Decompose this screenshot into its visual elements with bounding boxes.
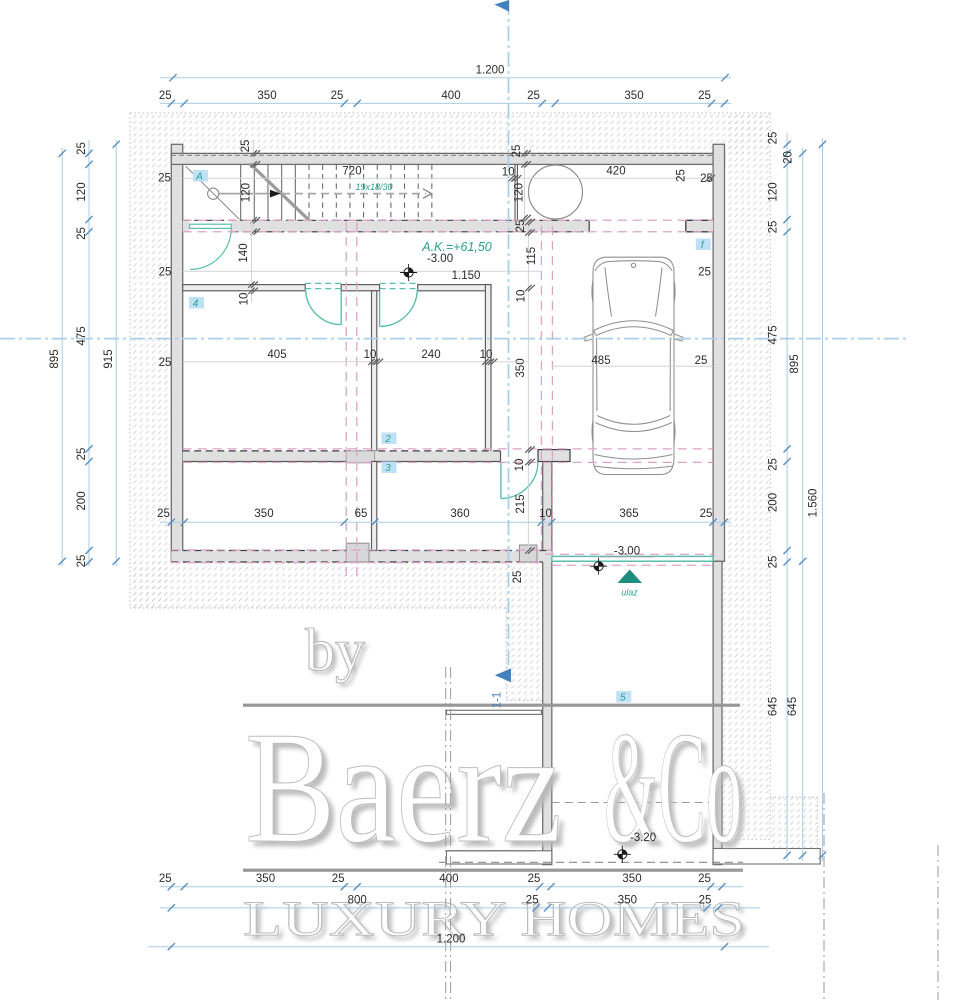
svg-text:25: 25 [515,220,527,233]
svg-text:25: 25 [698,90,711,102]
svg-text:25: 25 [159,267,172,279]
svg-text:200: 200 [768,493,780,512]
svg-text:475: 475 [768,325,780,344]
svg-text:25: 25 [768,221,780,234]
svg-text:2: 2 [384,434,391,445]
svg-text:360: 360 [450,508,469,520]
svg-text:915: 915 [103,349,115,368]
svg-text:350: 350 [622,873,641,885]
svg-text:25: 25 [695,355,708,367]
svg-text:10: 10 [539,508,552,520]
svg-text:120: 120 [514,183,526,202]
svg-text:1.560: 1.560 [808,489,820,518]
svg-text:25: 25 [332,873,345,885]
svg-text:-3.00: -3.00 [427,253,453,265]
svg-text:350: 350 [515,358,527,377]
svg-text:350: 350 [256,873,275,885]
svg-text:ulaz: ulaz [621,588,638,598]
svg-text:485: 485 [591,355,610,367]
svg-text:25: 25 [157,508,170,520]
svg-text:25: 25 [76,555,88,568]
svg-text:405: 405 [267,349,286,361]
svg-text:25: 25 [159,357,172,369]
svg-text:-3.20: -3.20 [630,832,656,844]
svg-text:365: 365 [619,508,638,520]
svg-text:25: 25 [676,169,688,182]
svg-text:400: 400 [439,873,458,885]
svg-text:200: 200 [76,491,88,510]
svg-text:895: 895 [49,349,61,368]
svg-text:350: 350 [618,895,637,907]
svg-text:800: 800 [348,895,367,907]
svg-text:A: A [195,172,203,183]
svg-text:420: 420 [606,166,625,178]
svg-text:645: 645 [768,697,780,716]
svg-text:895: 895 [789,354,801,373]
svg-text:1.150: 1.150 [452,270,481,282]
svg-text:-3.00: -3.00 [614,546,640,558]
svg-text:25: 25 [76,448,88,461]
svg-text:215: 215 [515,494,527,513]
svg-text:10: 10 [480,349,493,361]
svg-text:120: 120 [768,182,780,201]
svg-text:25: 25 [698,267,711,279]
svg-text:25: 25 [528,873,541,885]
svg-text:25: 25 [512,571,524,584]
svg-text:120: 120 [76,182,88,201]
svg-text:25: 25 [527,90,540,102]
svg-text:400: 400 [441,90,460,102]
svg-text:25: 25 [768,556,780,569]
svg-text:25: 25 [700,508,713,520]
svg-text:LUXURY HOMES: LUXURY HOMES [243,890,745,946]
svg-text:&: & [604,698,658,876]
svg-text:10: 10 [514,459,526,472]
svg-text:65: 65 [355,508,368,520]
svg-text:25: 25 [526,895,539,907]
svg-text:25: 25 [699,895,712,907]
svg-text:25: 25 [698,873,711,885]
svg-text:20: 20 [783,151,795,164]
svg-text:by: by [305,617,365,683]
svg-text:Co: Co [658,698,742,876]
svg-text:5: 5 [620,693,626,704]
svg-text:25: 25 [159,873,172,885]
svg-text:Baerz: Baerz [245,698,562,876]
svg-text:A.K.=+61,50: A.K.=+61,50 [421,240,492,254]
svg-text:25: 25 [76,227,88,240]
svg-text:1.200: 1.200 [476,65,505,77]
svg-text:475: 475 [76,326,88,345]
svg-text:120: 120 [241,183,253,202]
svg-text:1-1: 1-1 [492,692,504,709]
svg-text:140: 140 [238,243,250,262]
svg-text:350: 350 [254,508,273,520]
svg-text:25: 25 [768,458,780,471]
svg-text:350: 350 [624,90,643,102]
svg-text:240: 240 [421,349,440,361]
svg-text:19x18/30: 19x18/30 [355,182,392,192]
svg-text:10: 10 [239,293,251,306]
svg-text:4: 4 [193,299,199,310]
svg-text:25: 25 [158,173,171,185]
svg-text:25: 25 [768,132,780,145]
svg-text:1.200: 1.200 [437,934,466,946]
svg-text:645: 645 [787,697,799,716]
svg-text:115: 115 [526,247,538,265]
svg-text:25: 25 [240,140,252,153]
svg-text:720: 720 [342,166,361,178]
svg-text:3: 3 [385,463,391,474]
svg-text:350: 350 [257,90,276,102]
svg-text:25: 25 [159,90,172,102]
svg-text:25: 25 [331,90,344,102]
svg-text:25: 25 [511,145,523,158]
svg-text:25: 25 [76,142,88,155]
